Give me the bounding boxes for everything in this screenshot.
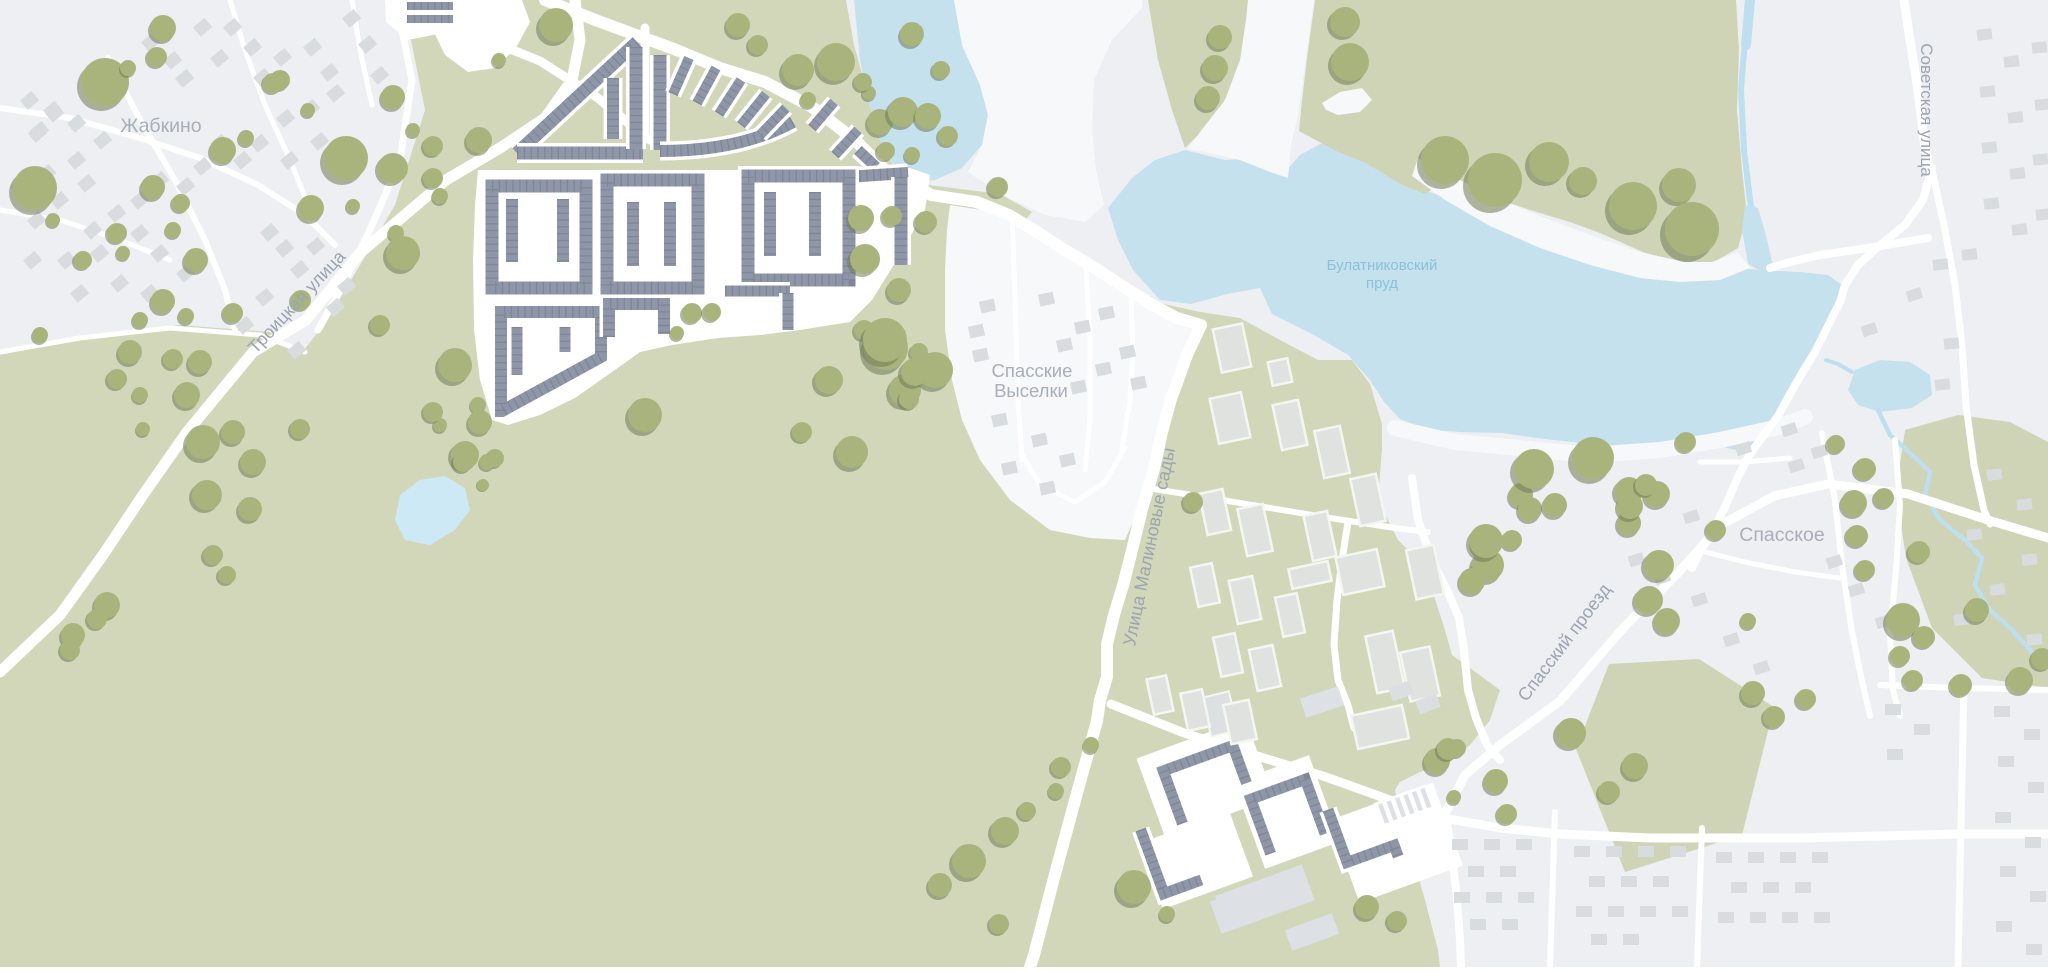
svg-text:Выселки: Выселки [994,380,1068,401]
svg-text:Жабкино: Жабкино [120,115,201,137]
svg-text:Булатниковский: Булатниковский [1327,257,1438,274]
svg-text:пруд: пруд [1366,275,1398,292]
svg-text:Спасское: Спасское [1739,524,1824,546]
svg-text:Спасские: Спасские [992,360,1073,381]
svg-text:Советская улица: Советская улица [1917,43,1936,177]
